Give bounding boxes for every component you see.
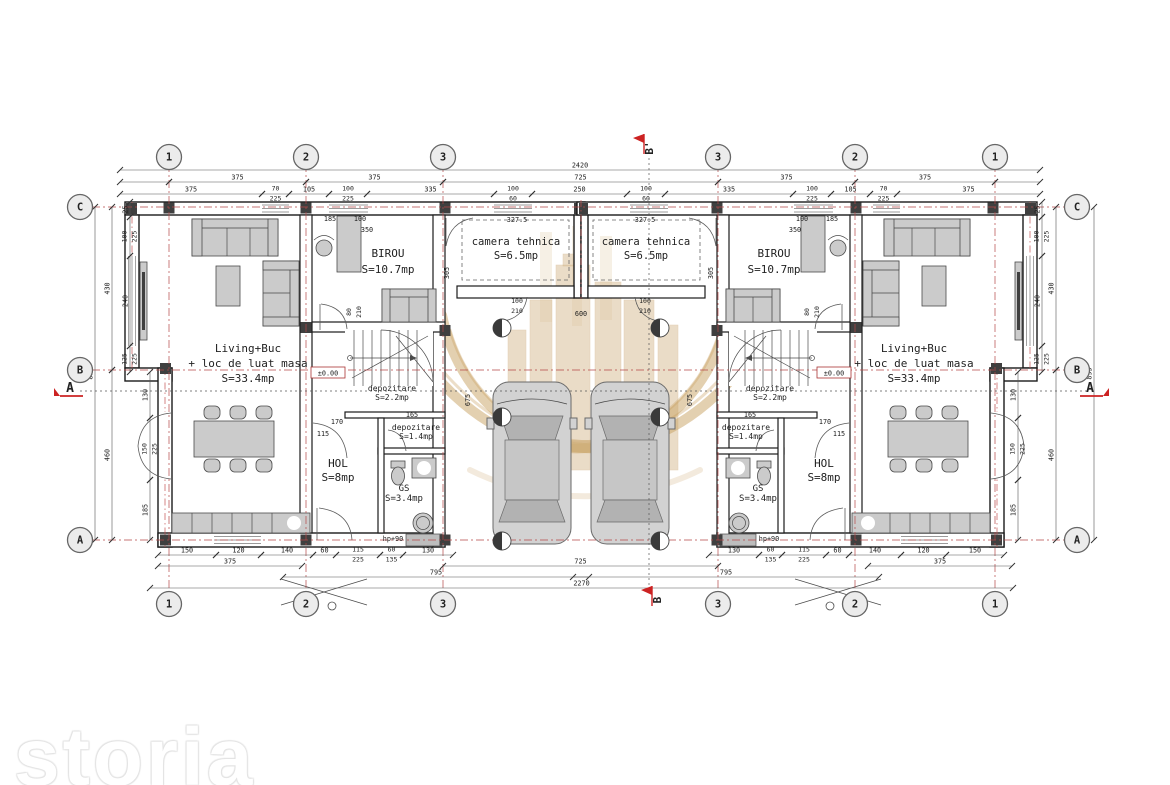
dimension-label: 210 [813,306,821,318]
dimension-label: 430 [1048,282,1056,294]
office-chair [314,236,334,257]
grid-bubble-label: 3 [715,599,721,611]
kitchen-sink [287,516,301,530]
room-label: S=2.2mp [375,393,409,402]
grid-bubble-label: 1 [992,599,998,611]
dimension-label: 375 [962,186,974,194]
porch-column-icon [328,602,336,610]
dimension-label: 60 [388,546,396,554]
dimension-label: 185 [826,215,838,223]
dimension-label: 135 [765,556,777,564]
dimension-label: 327.5 [507,216,527,224]
dimension-label: 140 [281,547,293,555]
dimension-label: 725 [574,558,586,566]
grid-bubble-label: 3 [715,152,721,164]
room-label: S=8mp [807,471,840,484]
dimension-label: 120 [232,547,244,555]
room-label: S=10.7mp [362,263,415,276]
dimension-label: 2270 [573,580,589,588]
room-label: S=8mp [321,471,354,484]
grid-bubble-label: 3 [440,599,446,611]
room-label: S=33.4mp [888,372,941,385]
porch-column-icon [826,602,834,610]
dimension-label: 375 [780,174,792,182]
level-value: ±0.00 [824,370,844,378]
dimension-label: 165 [406,411,418,419]
dimension-label: 100 [806,185,818,193]
dimension-label: 100 [507,185,519,193]
floor-plan-drawing: 2420375375725375375375702251051002253351… [0,0,1170,785]
section-marker: A [1086,381,1094,396]
dimension-label: 70 [880,185,888,193]
section-marker: B' [643,141,656,154]
dimension-label: 100 [354,215,366,223]
room-label: S=10.7mp [748,263,801,276]
kitchen-counter [172,513,310,533]
column [440,325,451,336]
grid-bubble-label: A [77,535,84,547]
dimension-label: 100 [796,215,808,223]
room-label: S=3.4mp [385,494,423,504]
grid-bubble-label: 2 [852,152,858,164]
grid-bubble-label: B [1074,365,1080,377]
dimension-label: 210 [639,307,651,315]
dimension-label: 225 [798,556,810,564]
window-top-1 [262,203,289,214]
dimension-label: 100 [121,231,129,243]
dimension-label: 115 [352,546,364,554]
sofa-large [192,219,278,256]
dimension-label: 250 [573,186,585,194]
dimension-label: 130 [728,547,740,555]
room-label: GS [399,484,410,494]
dimension-label: 327.5 [635,216,655,224]
window-top-2 [329,203,368,214]
dimension-label: 240 [122,295,130,307]
grid-bubble-label: C [77,202,83,214]
room-label: BIROU [371,247,404,260]
grid-bubble-label: 2 [303,152,309,164]
grid-bubble-label: 3 [440,152,446,164]
grid-bubble-label: 1 [166,152,172,164]
coffee-table [216,266,240,306]
sofa-small [263,261,299,326]
floor-plan-canvas: 2420375375725375375375702251051002253351… [0,0,1170,785]
dimension-label: 60 [320,547,328,555]
dimension-label: 335 [723,186,735,194]
sink [412,458,436,478]
dimension-label: 225 [878,195,890,203]
grid-bubble-label: 1 [166,599,172,611]
dimension-label: 225 [352,556,364,564]
staircase [345,330,433,386]
room-label: camera tehnica [472,236,561,248]
room-label: GS [753,484,764,494]
dimension-label: 600 [575,310,587,318]
room-label: + loc de luat masa [854,357,973,370]
dimension-label: 105 [844,186,856,194]
dimension-label: 350 [361,226,373,234]
entrance-porch [281,561,367,605]
dimension-label: 165 [744,411,756,419]
dimension-label: 100 [1033,231,1041,243]
dimension-label: 460 [104,449,112,461]
dimension-label: 105 [303,186,315,194]
window-top-tech [494,203,532,214]
dimension-label: 60 [509,195,517,203]
interior-wall-storage [345,412,445,418]
section-marker: B [651,596,664,603]
door-hall-living [301,421,347,461]
room-label: depozitare [368,384,416,393]
dimension-label: 120 [917,547,929,555]
dimension-label: 80 [803,308,811,316]
dimension-label: 125 [121,353,129,365]
dimension-label: 225 [151,443,159,455]
dimension-label: 125 [1033,353,1041,365]
dimension-label: 100 [639,297,651,305]
dimension-label: 2420 [572,162,588,170]
dimension-label: 170 [331,418,343,426]
dimension-label: 225 [270,195,282,203]
grid-bubble-label: 2 [303,599,309,611]
dimension-label: 225 [1043,231,1051,243]
section-marker-arrow [1103,388,1109,396]
grid-bubble-label: B [77,365,83,377]
room-label: S=33.4mp [222,372,275,385]
dimension-label: 375 [919,174,931,182]
dimension-label: 150 [141,443,149,455]
dimension-label: 25 [1034,205,1042,213]
room-label: depozitare [722,423,770,432]
party-wall [574,215,581,298]
dimension-label: 60 [642,195,650,203]
section-flag [641,586,652,595]
dimension-label: 150 [1009,443,1017,455]
room-label: HOL [814,457,834,470]
grid-bubble-label: C [1074,202,1080,214]
dimension-label: 185 [1010,504,1018,516]
dimension-label: 115 [798,546,810,554]
room-label: camera tehnica [602,236,691,248]
room-label: HOL [328,457,348,470]
interior-wall-gs-side [378,418,384,533]
room-label: S=3.4mp [739,494,777,504]
dimension-label: 60 [833,547,841,555]
grid-bubble-label: 1 [992,152,998,164]
dimension-label: 305 [707,267,715,279]
dimension-label: 135 [386,556,398,564]
room-label: S=2.2mp [753,393,787,402]
dimension-label: 675 [464,394,472,406]
dimension-label: 130 [142,389,150,401]
dimension-label: 225 [131,231,139,243]
room-label: Living+Buc [215,342,281,355]
grid-bubble-label: A [1074,535,1081,547]
dimension-label: 170 [819,418,831,426]
dimension-label: 100 [511,297,523,305]
dimension-label: 80 [345,308,353,316]
dimension-label: 375 [224,558,236,566]
dimension-label: hp+90 [383,535,403,543]
dimension-label: 375 [934,558,946,566]
dimension-label: 100 [342,185,354,193]
dimension-label: 795 [720,569,732,577]
dimension-label: 335 [424,186,436,194]
dimension-label: 225 [806,195,818,203]
dimension-label: 225 [342,195,354,203]
dimension-label: 795 [430,569,442,577]
dimension-label: 185 [142,504,150,516]
room-label: S=6.5mp [624,250,668,262]
room-label: S=6.5mp [494,250,538,262]
dimension-label: 725 [574,174,586,182]
column [440,203,451,214]
birou-sofa [382,289,436,322]
dimension-label: 60 [767,546,775,554]
room-label: + loc de luat masa [188,357,307,370]
dimension-label: 225 [1019,443,1027,455]
dimension-label: 675 [686,394,694,406]
storia-watermark: storia [14,711,255,785]
dimension-label: 115 [833,430,845,438]
dimension-label: 115 [317,430,329,438]
dimension-label: 150 [969,547,981,555]
dimension-label: 375 [368,174,380,182]
dimension-label: 140 [869,547,881,555]
dimension-label: 210 [511,307,523,315]
dimension-label: hp+90 [759,535,779,543]
column [160,363,171,374]
section-marker-arrow [54,388,60,396]
level-symbol-icon [493,319,502,337]
dimension-label: 350 [789,226,801,234]
room-label: BIROU [757,247,790,260]
dimension-label: 305 [443,267,451,279]
dimension-label: 225 [1043,353,1051,365]
dimension-label: 210 [355,306,363,318]
section-marker: A [66,381,74,396]
dimension-label: 70 [272,185,280,193]
dimension-label: 225 [131,353,139,365]
grid-bubble-label: 2 [852,599,858,611]
dimension-label: 460 [1048,449,1056,461]
car [487,382,577,544]
dimension-label: 150 [181,547,193,555]
dimension-label: 100 [640,185,652,193]
dimension-label: 375 [185,186,197,194]
room-label: depozitare [392,423,440,432]
dimension-label: 240 [1034,295,1042,307]
door-stair-birou [318,304,347,331]
room-label: S=1.4mp [399,432,433,441]
toilet [391,461,405,485]
door-tech-room [434,216,473,248]
room-label: Living+Buc [881,342,947,355]
dimension-label: 375 [231,174,243,182]
desk [337,216,361,272]
level-value: ±0.00 [318,370,338,378]
room-label: S=1.4mp [729,432,763,441]
tv-unit [140,262,147,340]
boiler [413,513,433,533]
dimension-label: 130 [1010,389,1018,401]
dimension-label: 185 [324,215,336,223]
room-label: depozitare [746,384,794,393]
dimension-label: 130 [422,547,434,555]
dimension-label: 430 [104,282,112,294]
dimension-label: 25 [122,205,130,213]
dining-table [194,406,274,472]
